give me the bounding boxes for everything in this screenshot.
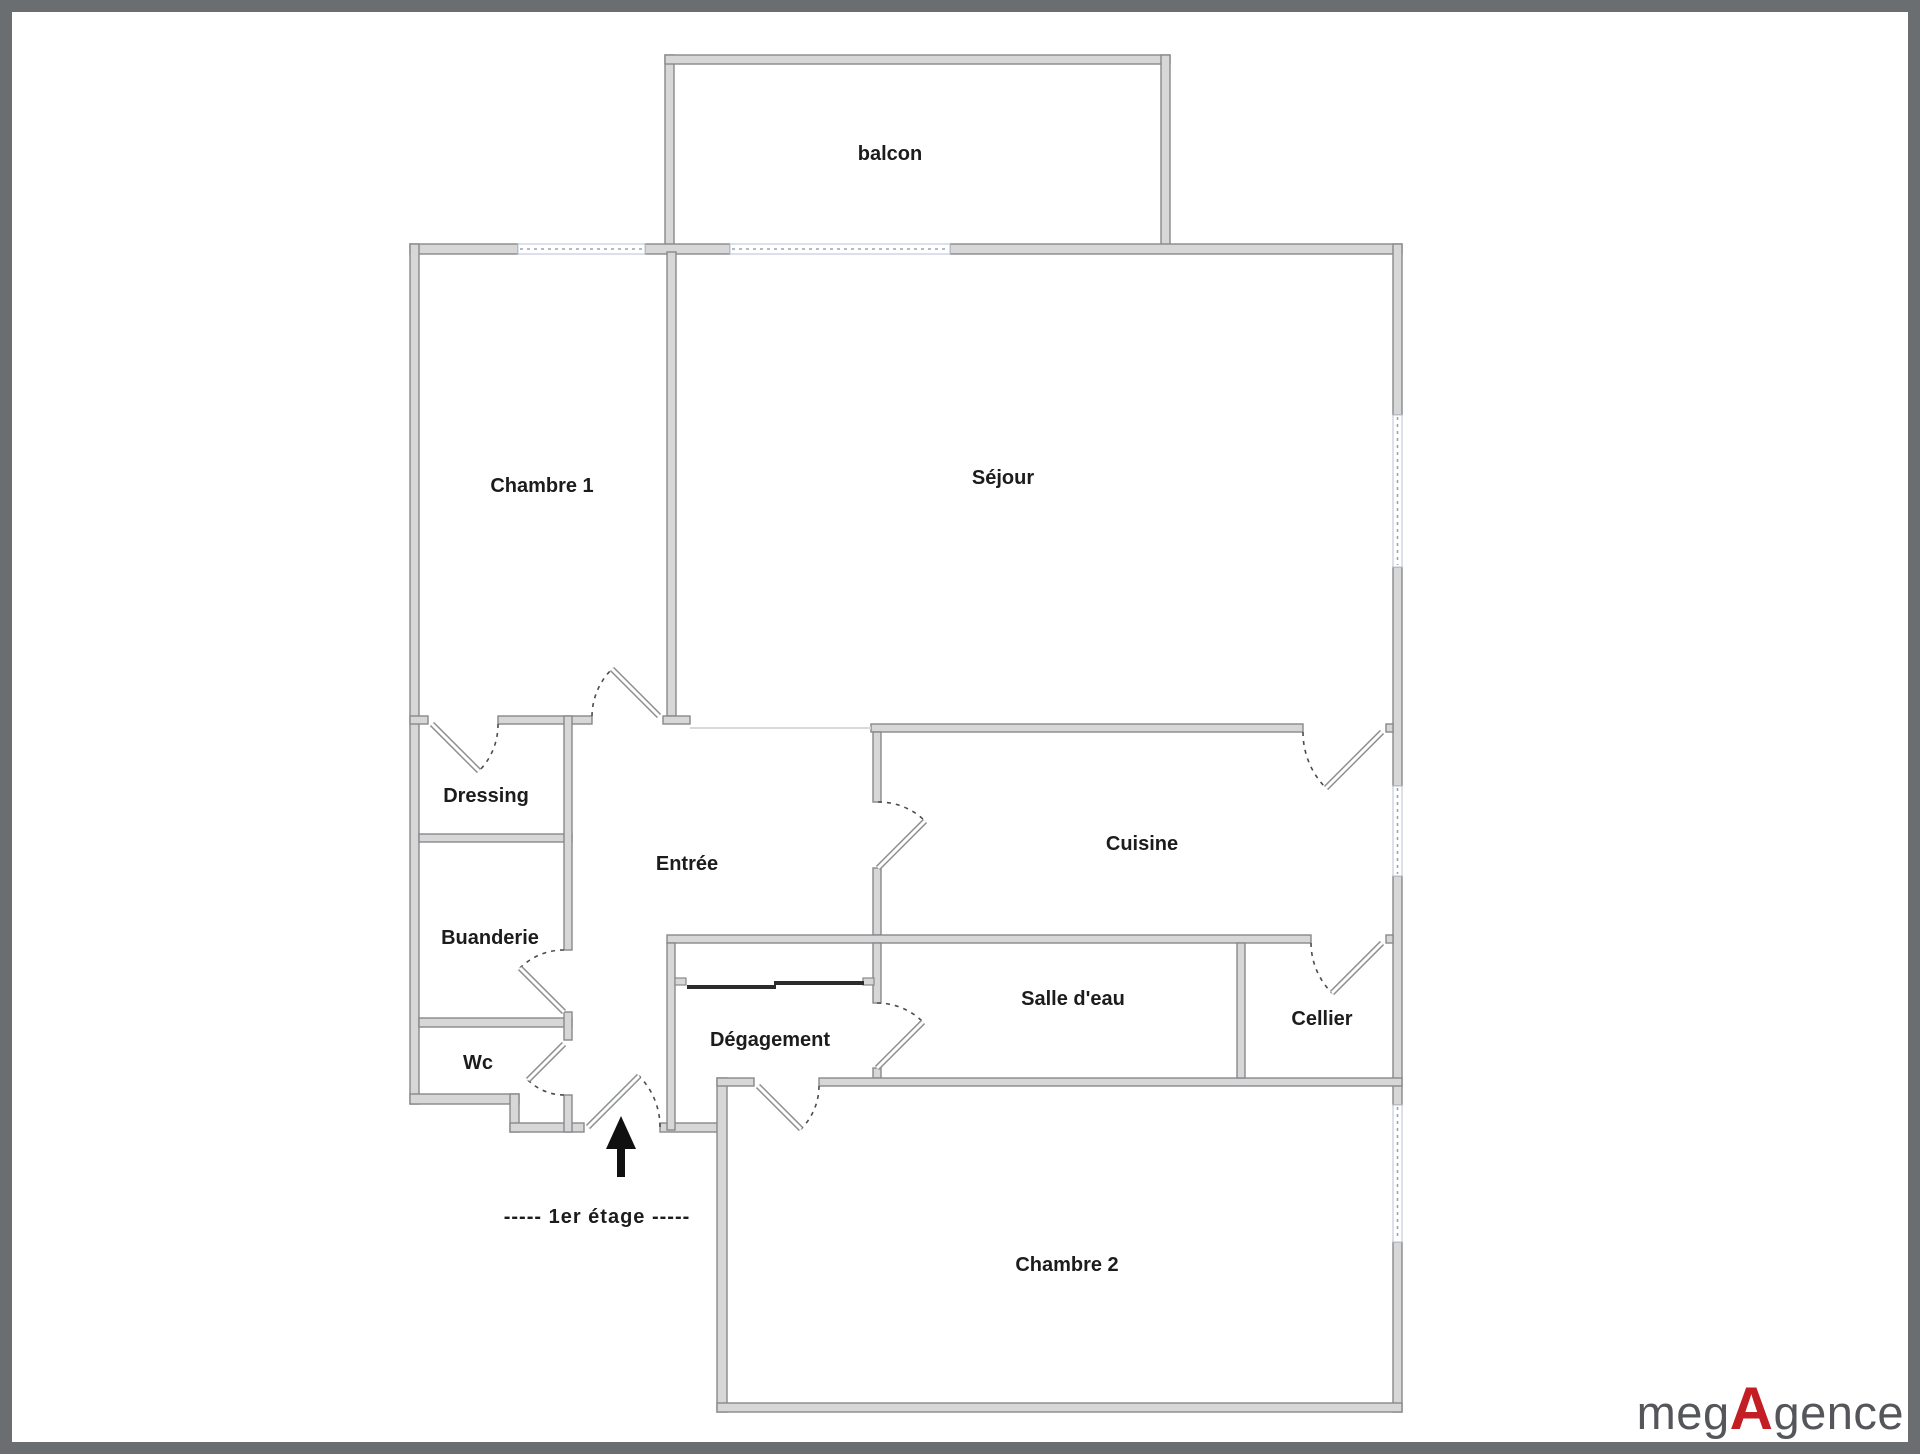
room-label-sejour: Séjour <box>972 467 1034 489</box>
wall <box>410 244 419 1104</box>
door-chambre2 <box>758 1086 819 1129</box>
room-label-salle-deau: Salle d'eau <box>1021 988 1125 1010</box>
wall <box>667 935 1311 943</box>
wall <box>663 716 690 724</box>
door-cuisine <box>878 802 925 868</box>
wall <box>717 1403 1402 1412</box>
wall <box>819 1078 1402 1086</box>
room-label-cuisine: Cuisine <box>1106 833 1178 855</box>
wall <box>410 244 518 254</box>
door-sejour-cuisine <box>1303 732 1382 788</box>
closet <box>675 978 874 989</box>
wall <box>1237 943 1245 1078</box>
wall <box>950 244 1402 254</box>
door-wc <box>528 1044 564 1095</box>
room-label-chambre2: Chambre 2 <box>1015 1254 1118 1276</box>
door-buanderie <box>520 950 564 1012</box>
wall <box>873 1068 881 1078</box>
wall <box>871 724 1303 732</box>
door-cellier <box>1311 943 1382 993</box>
room-label-balcon: balcon <box>858 143 922 165</box>
floor-level-label: ----- 1er étage ----- <box>504 1206 691 1228</box>
door-dressing <box>432 724 498 771</box>
room-label-buanderie: Buanderie <box>441 927 539 949</box>
wall <box>419 1018 572 1027</box>
wall <box>410 1094 519 1104</box>
wall <box>873 943 881 1003</box>
wall <box>1393 1242 1402 1412</box>
window-sejour-right <box>1393 415 1402 567</box>
wall <box>1386 935 1393 943</box>
room-label-entree: Entrée <box>656 853 718 875</box>
wall <box>667 943 675 1130</box>
wall <box>564 716 572 950</box>
wall <box>1161 55 1170 245</box>
wall <box>419 834 572 842</box>
wall <box>717 1078 754 1086</box>
room-label-cellier: Cellier <box>1291 1008 1352 1030</box>
window-cuisine-right <box>1393 786 1402 876</box>
floor-plan-page: balcon Chambre 1 Séjour Dressing Entrée … <box>0 0 1920 1454</box>
wall <box>665 55 674 245</box>
door-entry <box>588 1076 660 1127</box>
entrance-arrow <box>606 1116 636 1177</box>
wall <box>498 716 592 724</box>
wall <box>665 55 1170 64</box>
window-sejour-top <box>730 244 950 254</box>
window-chambre2-right <box>1393 1105 1402 1242</box>
room-label-chambre1: Chambre 1 <box>490 475 593 497</box>
wall <box>1393 244 1402 415</box>
room-label-degagement: Dégagement <box>710 1029 830 1051</box>
wall <box>1386 724 1393 732</box>
wall <box>1393 567 1402 786</box>
room-label-wc: Wc <box>463 1052 493 1074</box>
megagence-logo: megAgence <box>1637 1385 1904 1440</box>
wall <box>564 1012 572 1040</box>
wall <box>717 1078 727 1412</box>
wall <box>667 252 676 716</box>
logo-text-gence: gence <box>1773 1385 1904 1440</box>
wall <box>564 1095 572 1132</box>
door-chambre1 <box>592 669 659 716</box>
wall <box>873 868 881 935</box>
window-chambre1-top <box>518 244 645 254</box>
door-salle-deau <box>877 1003 923 1068</box>
wall <box>645 244 730 254</box>
wall <box>510 1123 584 1132</box>
room-label-dressing: Dressing <box>443 785 529 807</box>
floor-plan: balcon Chambre 1 Séjour Dressing Entrée … <box>0 0 1920 1454</box>
logo-text-meg: meg <box>1637 1385 1730 1440</box>
wall <box>1393 876 1402 1105</box>
wall <box>873 732 881 802</box>
room-labels: balcon Chambre 1 Séjour Dressing Entrée … <box>441 143 1353 1276</box>
wall <box>410 716 428 724</box>
